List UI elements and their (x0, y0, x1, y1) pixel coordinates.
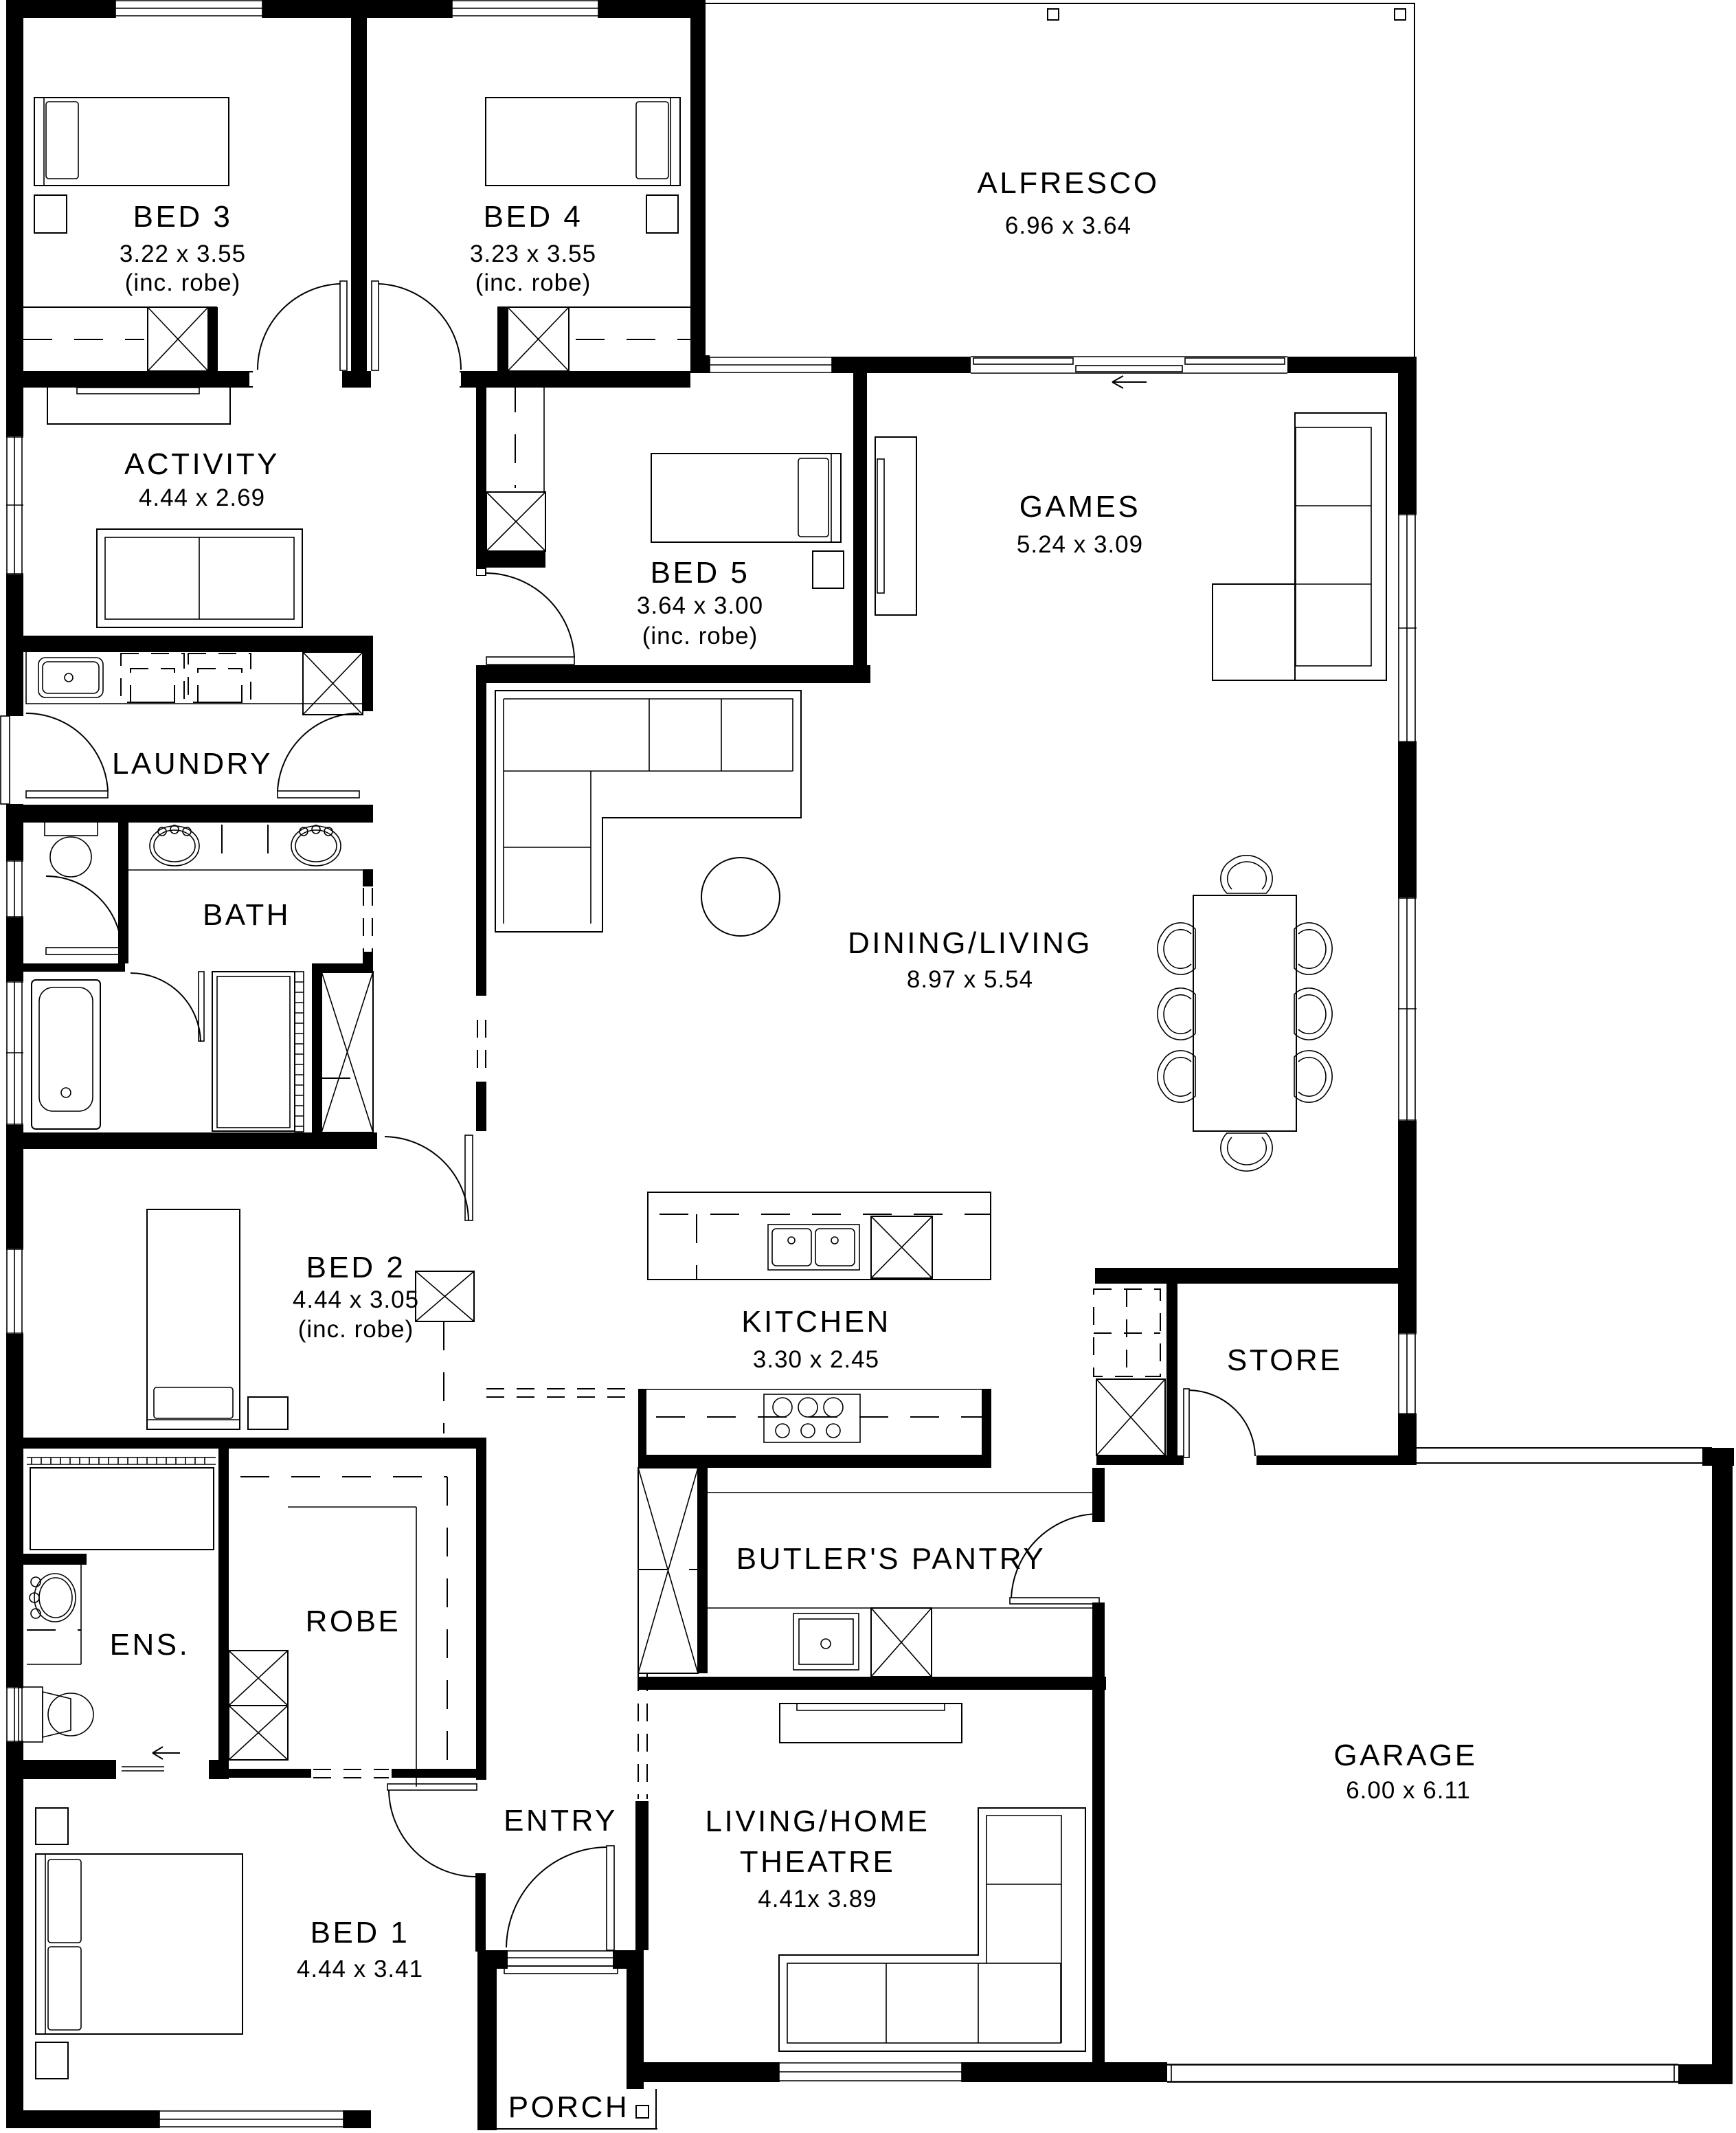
svg-text:(inc. robe): (inc. robe) (475, 269, 591, 296)
svg-text:(inc. robe): (inc. robe) (125, 269, 241, 296)
svg-text:3.23 x 3.55: 3.23 x 3.55 (470, 241, 596, 267)
svg-text:BED 3: BED 3 (133, 200, 233, 234)
svg-text:3.30 x 2.45: 3.30 x 2.45 (753, 1346, 879, 1373)
svg-text:ENTRY: ENTRY (504, 1804, 618, 1838)
svg-text:BED 4: BED 4 (484, 200, 583, 234)
svg-text:4.44 x 2.69: 4.44 x 2.69 (139, 484, 265, 511)
svg-text:DINING/LIVING: DINING/LIVING (848, 926, 1092, 960)
svg-text:4.44 x 3.05: 4.44 x 3.05 (293, 1286, 419, 1313)
svg-text:ACTIVITY: ACTIVITY (124, 447, 280, 481)
svg-text:STORE: STORE (1227, 1343, 1342, 1377)
svg-text:8.97 x 5.54: 8.97 x 5.54 (907, 966, 1033, 993)
svg-text:BATH: BATH (203, 898, 291, 932)
svg-text:(inc. robe): (inc. robe) (298, 1316, 414, 1343)
svg-text:THEATRE: THEATRE (740, 1845, 896, 1879)
svg-text:BUTLER'S PANTRY: BUTLER'S PANTRY (736, 1542, 1046, 1576)
svg-text:ENS.: ENS. (110, 1628, 190, 1662)
svg-text:ROBE: ROBE (306, 1605, 401, 1638)
svg-text:(inc. robe): (inc. robe) (642, 623, 758, 649)
svg-text:LAUNDRY: LAUNDRY (112, 747, 273, 781)
svg-text:PORCH: PORCH (508, 2090, 629, 2124)
svg-text:4.44 x 3.41: 4.44 x 3.41 (297, 1956, 423, 1983)
svg-text:GARAGE: GARAGE (1333, 1739, 1477, 1772)
svg-text:3.64 x 3.00: 3.64 x 3.00 (637, 592, 763, 619)
svg-text:4.41x 3.89: 4.41x 3.89 (758, 1886, 877, 1912)
svg-text:BED 5: BED 5 (651, 556, 750, 590)
svg-text:3.22 x 3.55: 3.22 x 3.55 (120, 241, 246, 267)
svg-text:6.96 x 3.64: 6.96 x 3.64 (1005, 212, 1131, 239)
svg-text:BED 2: BED 2 (306, 1251, 406, 1284)
svg-text:6.00 x 6.11: 6.00 x 6.11 (1346, 1777, 1471, 1804)
svg-text:ALFRESCO: ALFRESCO (977, 166, 1159, 200)
svg-text:LIVING/HOME: LIVING/HOME (706, 1805, 930, 1838)
svg-text:GAMES: GAMES (1019, 490, 1140, 524)
svg-text:5.24 x 3.09: 5.24 x 3.09 (1017, 531, 1143, 558)
svg-text:BED 1: BED 1 (311, 1916, 410, 1950)
svg-text:KITCHEN: KITCHEN (741, 1305, 891, 1339)
